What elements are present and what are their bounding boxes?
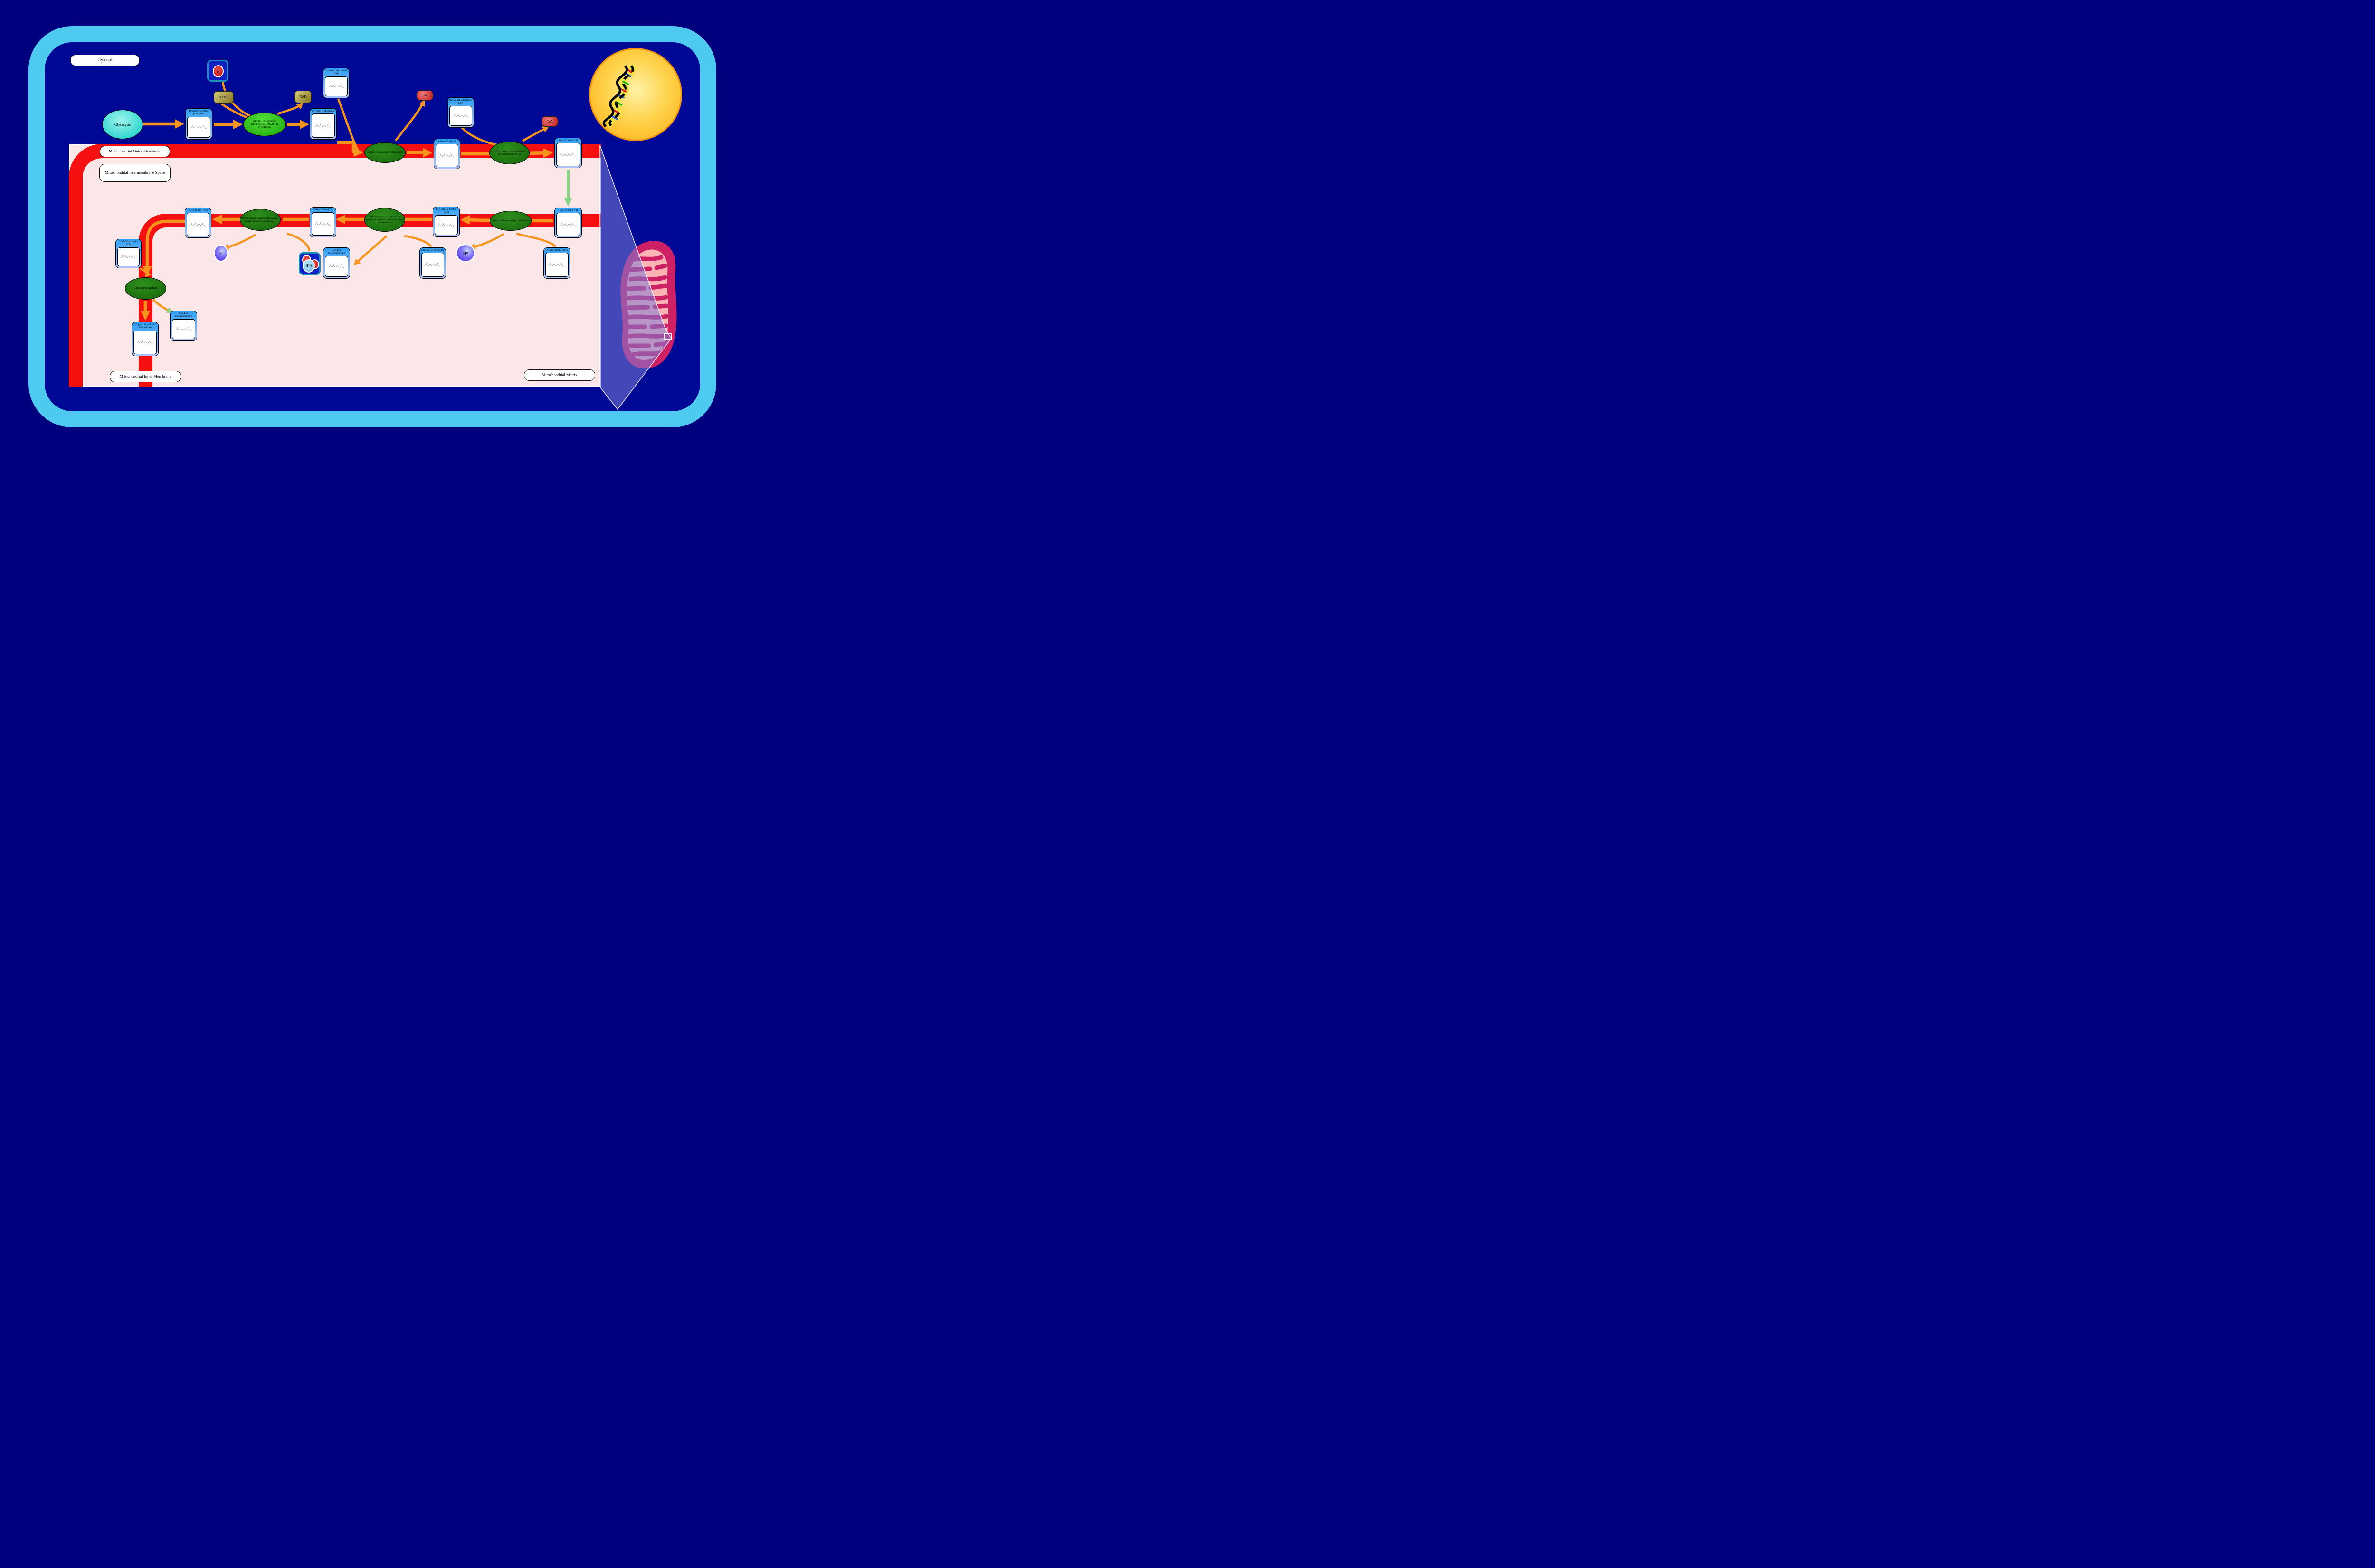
badge-coa-1[interactable]: CoA bbox=[417, 90, 433, 101]
pathway-diagram-canvas: Cytosol Mitochondrial Outer Membrane Mit… bbox=[0, 0, 745, 455]
node-title: LPA(a-13:0/0:0) bbox=[434, 139, 460, 143]
process-glycolysis[interactable]: Glycolysis bbox=[102, 110, 143, 139]
enzyme-pcyt2[interactable]: Phosphatidate cytidylyltransferase 2 bbox=[490, 211, 532, 231]
badge-nadh[interactable]: NADH bbox=[214, 91, 234, 104]
enzyme-agpat-epsilon[interactable]: 1-Acyl-sn-glycerol-3-phosphate acyltrans… bbox=[489, 142, 530, 164]
node-dhap[interactable]: Dihydroxyacetone phosphate bbox=[185, 108, 212, 140]
node-title: CDP-DG(i-19:0/i-12:0) bbox=[116, 239, 141, 247]
enzyme-gpat[interactable]: Glycerol-3-phosphate acyltransferase bbox=[364, 142, 406, 163]
structure-image bbox=[117, 247, 140, 267]
structure-image bbox=[325, 256, 348, 277]
node-g3p-cytosolic[interactable]: Glycerol 3-phosphate bbox=[310, 108, 337, 140]
node-title: PA(a-13:0/a-17:0) bbox=[555, 208, 581, 212]
node-title: Cytidine monophosphate bbox=[323, 248, 350, 255]
structure-image bbox=[421, 253, 444, 277]
node-cdp-dg[interactable]: CDP-DG(a-13:0/a-17:0) bbox=[433, 207, 460, 237]
structure-image bbox=[133, 331, 157, 355]
structure-image bbox=[436, 144, 458, 167]
structure-image bbox=[172, 319, 195, 340]
structure-image bbox=[325, 76, 348, 97]
badge-pi[interactable]: Pi bbox=[215, 246, 227, 261]
node-title: Anteisotridecanoyl-CoA bbox=[323, 68, 349, 76]
label-inner-membrane: Mitochondrial Inner Membrane bbox=[110, 371, 181, 382]
node-anteisotridecanoyl-coa[interactable]: Anteisotridecanoyl-CoA bbox=[323, 68, 350, 98]
node-anteisoheptadecanoyl-coa[interactable]: Anteisoheptadecanoyl-CoA bbox=[447, 97, 474, 128]
badge-nad[interactable]: NAD bbox=[294, 91, 312, 103]
node-title: CL(a-13:0/a-17:0/i-19:0/i-12:0) bbox=[132, 322, 158, 330]
structure-image bbox=[545, 253, 569, 277]
enzyme-ptpmt1[interactable]: Phosphatidylglycerophosphatase and prote… bbox=[240, 209, 281, 231]
node-pgp[interactable]: PGP(a-13:0/a-17:0) bbox=[310, 207, 336, 237]
badge-ppi[interactable]: PPi bbox=[457, 245, 474, 261]
water-icon[interactable]: H2O bbox=[299, 252, 321, 275]
node-title: CDP-DG(a-13:0/a-17:0) bbox=[433, 207, 459, 215]
structure-image bbox=[312, 212, 334, 236]
structure-image bbox=[449, 106, 472, 126]
node-title: PG(a-13:0/a-17:0) bbox=[185, 208, 211, 212]
node-title: Glycerol 3-phosphate bbox=[310, 109, 336, 113]
structure-image bbox=[187, 213, 209, 236]
enzyme-pgs1[interactable]: CDP-diacylglycerol--glycerol-3-phosphate… bbox=[364, 208, 405, 232]
enzyme-cardiolipin-synthase[interactable]: Cardiolipin synthase bbox=[125, 277, 166, 300]
structure-image bbox=[556, 213, 580, 236]
node-cmp-matrix[interactable]: Cytidine monophosphate bbox=[170, 311, 197, 341]
node-g3p-matrix[interactable]: Glycerol 3-phosphate bbox=[419, 247, 446, 279]
enzyme-gpd1[interactable]: Glycerol-3-phosphate dehydrogenase [NAD(… bbox=[243, 113, 286, 136]
node-cdp-dg-2[interactable]: CDP-DG(i-19:0/i-12:0) bbox=[115, 239, 142, 268]
badge-coa-2[interactable]: CoA bbox=[541, 116, 558, 127]
node-title: PA(a-13:0/a-17:0) bbox=[555, 138, 581, 142]
node-cardiolipin[interactable]: CL(a-13:0/a-17:0/i-19:0/i-12:0) bbox=[132, 322, 159, 356]
structure-image bbox=[556, 143, 580, 166]
node-pg[interactable]: PG(a-13:0/a-17:0) bbox=[185, 208, 211, 238]
structure-image bbox=[435, 215, 458, 236]
node-pa-lower[interactable]: PA(a-13:0/a-17:0) bbox=[554, 208, 582, 238]
label-intermembrane-space: Mitochondrial Intermembrane Space bbox=[99, 164, 171, 182]
label-outer-membrane: Mitochondrial Outer Membrane bbox=[100, 146, 170, 157]
node-title: Cytidine monophosphate bbox=[171, 311, 197, 319]
node-cmp-inner[interactable]: Cytidine monophosphate bbox=[323, 247, 350, 279]
node-ctp[interactable]: Cytidine triphosphate bbox=[543, 247, 570, 279]
structure-image bbox=[312, 113, 335, 138]
node-title: Glycerol 3-phosphate bbox=[420, 248, 446, 252]
node-lpa[interactable]: LPA(a-13:0/0:0) bbox=[434, 139, 460, 169]
node-title: Dihydroxyacetone phosphate bbox=[186, 109, 212, 116]
proton-icon[interactable]: H + bbox=[207, 60, 228, 82]
node-title: Cytidine triphosphate bbox=[544, 248, 570, 252]
label-matrix: Mitochondrial Matrix bbox=[524, 369, 595, 381]
node-pa-upper[interactable]: PA(a-13:0/a-17:0) bbox=[554, 138, 582, 168]
label-cytosol: Cytosol bbox=[70, 55, 140, 66]
node-title: PGP(a-13:0/a-17:0) bbox=[310, 208, 336, 212]
node-title: Anteisoheptadecanoyl-CoA bbox=[448, 98, 474, 105]
structure-image bbox=[187, 117, 210, 138]
